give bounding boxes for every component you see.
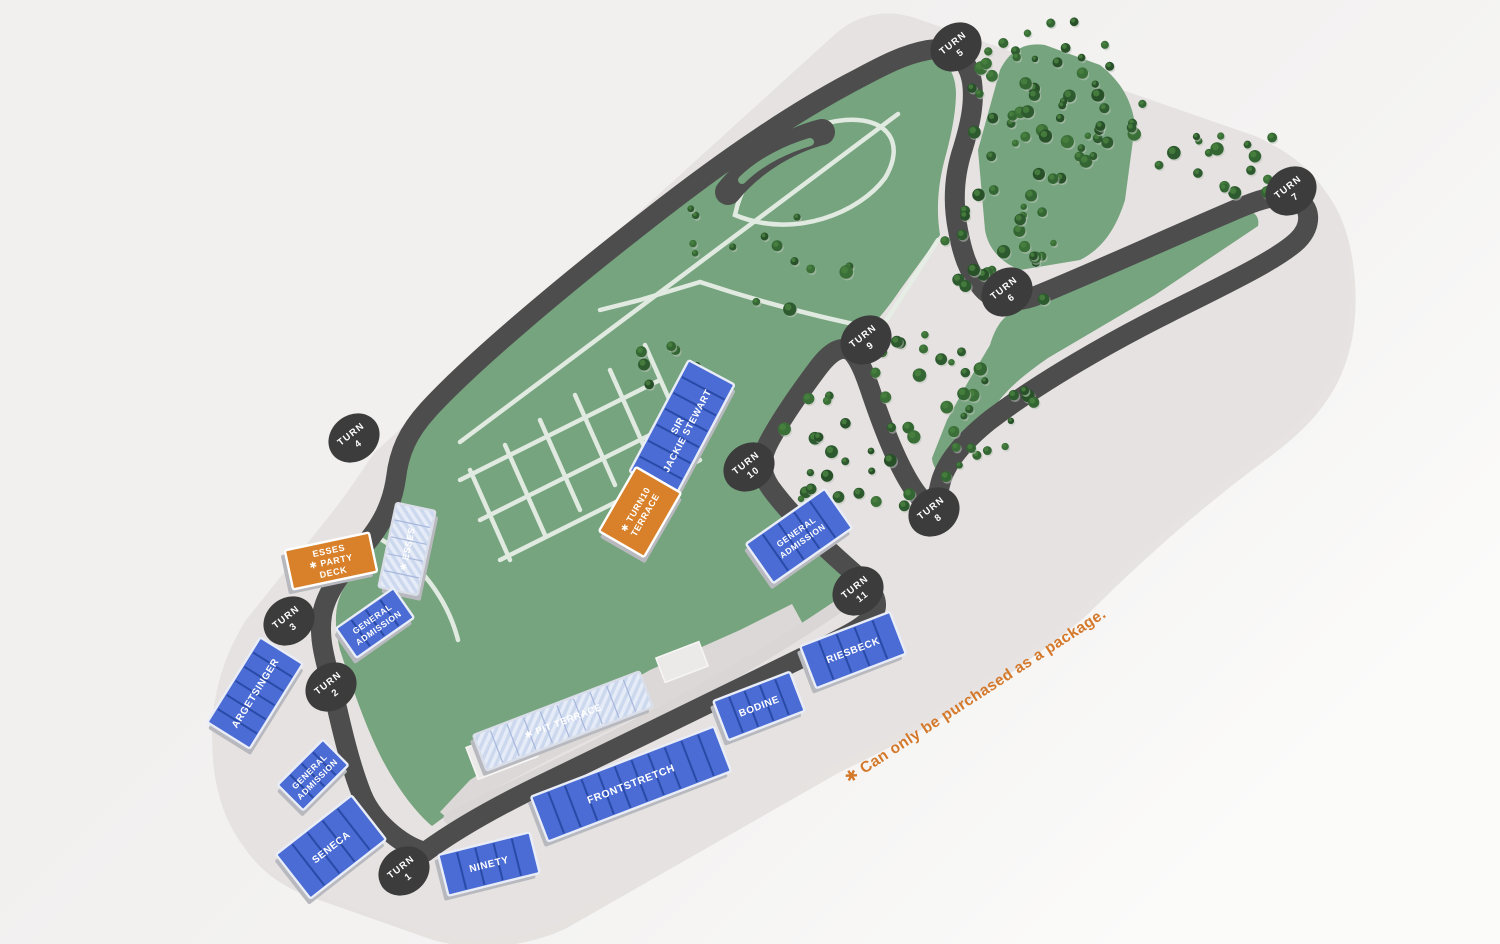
tree-highlight (1010, 391, 1015, 396)
tree-highlight (886, 455, 892, 461)
tree-highlight (637, 347, 642, 352)
tree-highlight (892, 337, 898, 343)
tree-highlight (794, 214, 798, 218)
tree-highlight (920, 345, 925, 350)
tree-highlight (822, 471, 828, 477)
tree-highlight (785, 304, 792, 311)
tree-highlight (1012, 47, 1017, 52)
tree-highlight (1264, 176, 1269, 181)
tree-highlight (834, 492, 840, 498)
tree-highlight (855, 489, 860, 494)
tree-highlight (1212, 144, 1219, 151)
tree-highlight (1071, 18, 1075, 22)
tree-highlight (1102, 42, 1106, 46)
tree-highlight (1030, 398, 1036, 404)
tree-highlight (985, 48, 989, 52)
tree-highlight (1038, 208, 1043, 213)
tree-highlight (807, 485, 812, 490)
tree-highlight (1065, 91, 1071, 97)
tree-highlight (1078, 145, 1082, 149)
tree-highlight (961, 212, 966, 217)
tree-highlight (1194, 169, 1199, 174)
tree-highlight (1268, 134, 1273, 139)
tree-highlight (1049, 174, 1054, 179)
tree-highlight (1061, 98, 1065, 102)
tree-highlight (1051, 240, 1054, 243)
tree-highlight (1194, 134, 1198, 138)
tree-highlight (1097, 122, 1102, 127)
tree-highlight (753, 299, 757, 303)
tree-highlight (989, 114, 994, 119)
tree-highlight (1221, 184, 1226, 189)
tree-highlight (982, 378, 986, 382)
tree-highlight (881, 393, 887, 399)
tree-highlight (999, 246, 1006, 253)
tree-highlight (1047, 19, 1052, 24)
tree-highlight (1057, 115, 1061, 119)
tree-highlight (975, 364, 982, 371)
tree-highlight (984, 447, 988, 451)
tree-highlight (804, 394, 810, 400)
tree-highlight (1218, 133, 1222, 137)
tree-highlight (791, 258, 795, 262)
tree-highlight (841, 267, 848, 274)
tree-highlight (961, 413, 964, 416)
tree-highlight (1059, 102, 1063, 106)
venue-map: ARGETSINGERGENERALADMISSIONSENECANINETYF… (0, 0, 1500, 944)
tree-highlight (1078, 69, 1084, 75)
tree-highlight (1090, 153, 1094, 157)
tree-highlight (957, 462, 960, 465)
tree-highlight (872, 497, 878, 503)
tree-highlight (909, 432, 916, 439)
tree-highlight (961, 281, 967, 287)
tree-highlight (958, 348, 962, 352)
tree-highlight (888, 424, 893, 429)
tree-highlight (922, 332, 926, 336)
tree-highlight (982, 59, 988, 65)
tree-highlight (824, 397, 828, 401)
tree-highlight (640, 360, 646, 366)
tree-highlight (1009, 111, 1014, 116)
tree-highlight (966, 406, 970, 410)
tree-highlight (1169, 147, 1176, 154)
tree-highlight (688, 206, 691, 209)
tree-highlight (1076, 153, 1081, 158)
tree-highlight (1054, 58, 1059, 63)
tree-highlight (872, 369, 877, 374)
tree-highlight (1002, 444, 1006, 448)
tree-highlight (842, 458, 846, 462)
tree-highlight (942, 402, 948, 408)
tree-highlight (773, 241, 778, 246)
tree-highlight (1041, 131, 1048, 138)
tree-highlight (954, 275, 960, 281)
tree-highlight (1021, 78, 1027, 84)
tree-highlight (1062, 136, 1069, 143)
tree-highlight (976, 90, 980, 94)
tree-highlight (1025, 30, 1029, 34)
tree-highlight (914, 370, 921, 377)
tree-highlight (779, 424, 786, 431)
tree-highlight (962, 369, 967, 374)
tree-highlight (968, 444, 973, 449)
tree-highlight (868, 448, 871, 451)
tree-highlight (1085, 133, 1088, 136)
tree-highlight (1016, 108, 1022, 114)
tree-highlight (1016, 215, 1022, 221)
tree-highlight (942, 472, 947, 477)
tree-highlight (730, 244, 734, 248)
tree-highlight (826, 392, 830, 396)
tree-highlight (808, 470, 812, 474)
tree-highlight (968, 84, 973, 89)
tree-highlight (937, 354, 943, 360)
tree-highlight (1081, 156, 1088, 163)
tree-highlight (1022, 133, 1027, 138)
tree-highlight (969, 265, 975, 271)
tree-highlight (904, 423, 910, 429)
tree-highlight (1008, 418, 1011, 421)
tree-highlight (815, 433, 820, 438)
tree-highlight (1023, 107, 1029, 113)
tree-highlight (1156, 162, 1160, 166)
tree-highlight (1079, 55, 1083, 59)
tree-highlight (668, 342, 673, 347)
tree-highlight (974, 190, 980, 196)
tree-highlight (987, 71, 993, 77)
tree-highlight (646, 381, 651, 386)
tree-highlight (799, 496, 802, 499)
tree-highlight (1021, 387, 1026, 392)
tree-highlight (1139, 101, 1143, 105)
tree-highlight (959, 389, 965, 395)
tree-highlight (961, 207, 966, 212)
tree-highlight (1093, 90, 1100, 97)
tree-highlight (1106, 63, 1111, 68)
tree-highlight (690, 241, 694, 245)
tree-highlight (1092, 81, 1096, 85)
tree-highlight (969, 127, 975, 133)
tree-highlight (1101, 104, 1106, 109)
tree-highlight (841, 419, 846, 424)
tree-highlight (807, 265, 811, 269)
tree-highlight (1020, 242, 1026, 248)
tree-highlight (693, 251, 696, 254)
tree-highlight (1206, 150, 1210, 154)
tree-highlight (1034, 169, 1040, 175)
tree-highlight (1030, 253, 1034, 257)
tree-highlight (941, 237, 946, 242)
tree-highlight (990, 186, 995, 191)
tree-highlight (900, 501, 905, 506)
tree-highlight (1027, 191, 1033, 197)
tree-highlight (1015, 226, 1021, 232)
tree-highlight (1247, 166, 1252, 171)
tree-highlight (958, 231, 963, 236)
tree-highlight (827, 447, 833, 453)
tree-highlight (953, 444, 958, 449)
tree-highlight (1014, 54, 1018, 58)
tree-highlight (988, 152, 993, 157)
tree-highlight (949, 360, 952, 363)
tree-highlight (1000, 39, 1005, 44)
tree-highlight (1039, 294, 1045, 300)
tree-highlight (1103, 138, 1109, 144)
tree-highlight (905, 489, 911, 495)
tree-highlight (869, 468, 873, 472)
tree-highlight (1250, 151, 1256, 157)
venue-map-page: ARGETSINGERGENERALADMISSIONSENECANINETYF… (0, 0, 1500, 944)
tree-highlight (1062, 44, 1067, 49)
tree-highlight (1128, 124, 1133, 129)
tree-highlight (1033, 56, 1036, 59)
tree-highlight (1013, 140, 1017, 144)
tree-highlight (1030, 91, 1036, 97)
tree-highlight (1021, 204, 1024, 207)
tree-highlight (762, 233, 766, 237)
tree-highlight (1245, 141, 1249, 145)
tree-highlight (950, 427, 956, 433)
